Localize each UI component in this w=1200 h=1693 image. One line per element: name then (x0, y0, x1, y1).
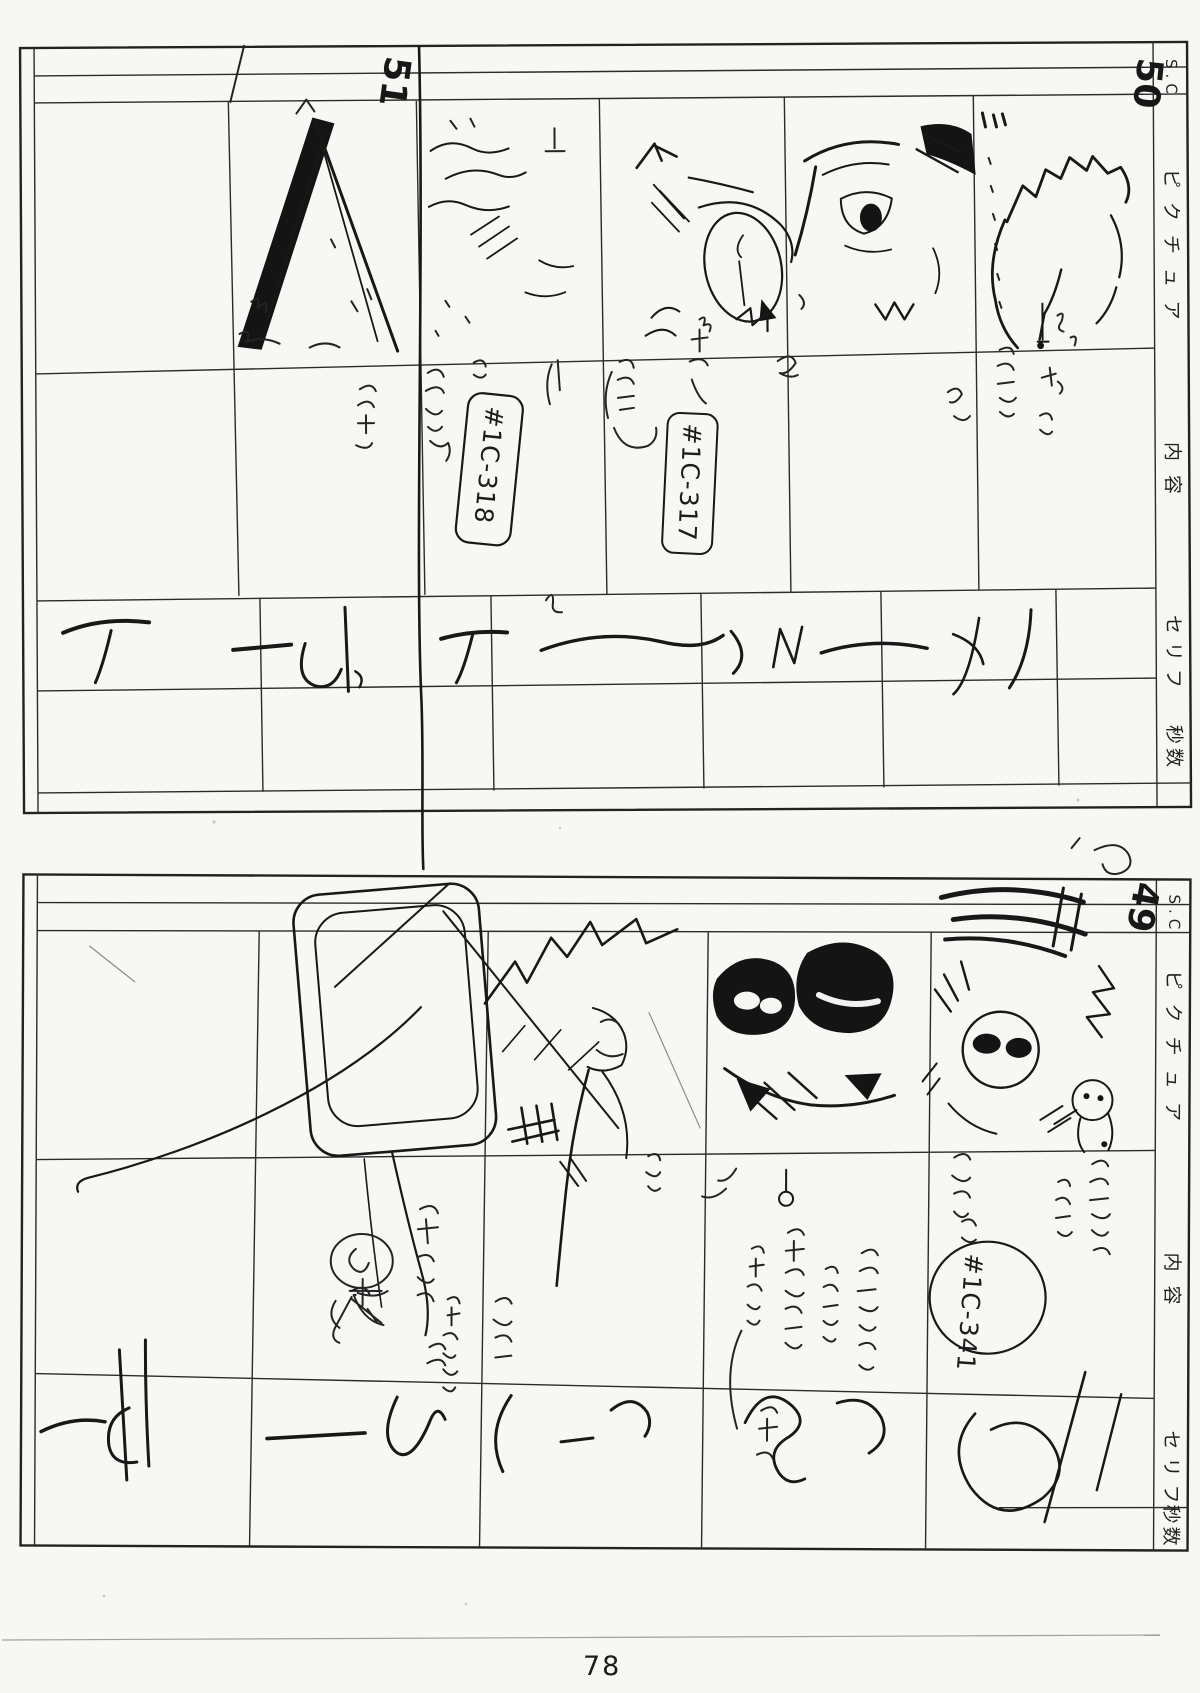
col-header-dialog: セリフ (1162, 615, 1184, 696)
sketch-dense-characters (922, 887, 1114, 1152)
sketch-big-face (794, 124, 976, 320)
scan-specks (103, 799, 1080, 1606)
svg-text:#1C-317: #1C-317 (672, 423, 707, 542)
page-number: 78 (583, 1651, 621, 1682)
sketch-open-mouth-face (637, 143, 793, 336)
cut-label-circle-1C-341: #1C-341 (929, 1241, 1046, 1372)
scanned-storyboard-page: S.C ピクチュア 内容 セリフ 秒数 50 51 #1C-318 #1C-31… (0, 0, 1200, 1693)
sketch-spiky-figure (484, 918, 702, 1286)
col-header-picture: ピクチュア (1160, 169, 1183, 334)
footer-rule (2, 1635, 1160, 1640)
cut-label-box-1C-317: #1C-317 (662, 412, 719, 554)
sketch-wave-scribbles (428, 118, 573, 336)
scene-number-49: 49 (1118, 879, 1167, 936)
handwriting-content-notes-bottom (17, 1150, 1110, 1460)
col-header-content-2: 内容 (1161, 1252, 1183, 1318)
storyboard-sheet-top: S.C ピクチュア 内容 セリフ 秒数 50 51 #1C-318 #1C-31… (20, 41, 1191, 871)
grid-lines-top (20, 42, 1191, 813)
scene-number-51: 51 (370, 54, 417, 109)
col-header-content: 内容 (1161, 442, 1183, 508)
sketch-dark-valley (236, 99, 397, 352)
sketch-dark-heads (702, 942, 895, 1206)
scan-canvas: S.C ピクチュア 内容 セリフ 秒数 50 51 #1C-318 #1C-31… (0, 0, 1200, 1693)
col-header-seconds: 秒数 (1163, 725, 1185, 771)
sketch-back-view-character (982, 112, 1129, 349)
col-header-dialog-2: セリフ (1160, 1430, 1182, 1511)
svg-text:#1C-318: #1C-318 (468, 405, 509, 525)
col-header-sc-2: S.C (1165, 894, 1183, 934)
col-header-picture-2: ピクチュア (1161, 970, 1184, 1135)
stray-flourish-49 (1071, 838, 1130, 874)
grid-lines-bottom (21, 874, 1191, 1550)
col-header-seconds-2: 秒数 (1160, 1504, 1182, 1548)
scene-number-50: 50 (1124, 56, 1170, 110)
cut-label-box-1C-318: #1C-318 (455, 392, 525, 547)
storyboard-sheet-bottom: S.C ピクチュア 内容 セリフ 秒数 49 #1C-341 (17, 833, 1191, 1550)
